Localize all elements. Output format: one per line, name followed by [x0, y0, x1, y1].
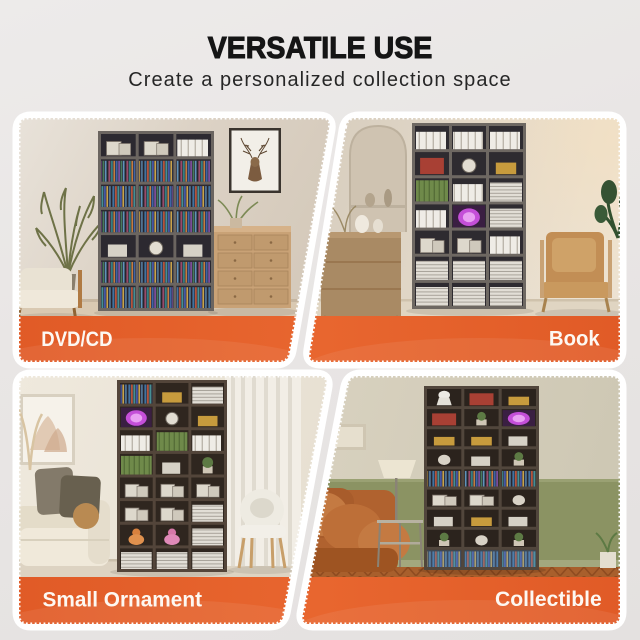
- svg-text:Small Ornament: Small Ornament: [43, 588, 203, 612]
- svg-text:DVD/CD: DVD/CD: [41, 327, 112, 351]
- svg-text:Collectible: Collectible: [495, 587, 602, 611]
- svg-text:Book: Book: [549, 327, 600, 351]
